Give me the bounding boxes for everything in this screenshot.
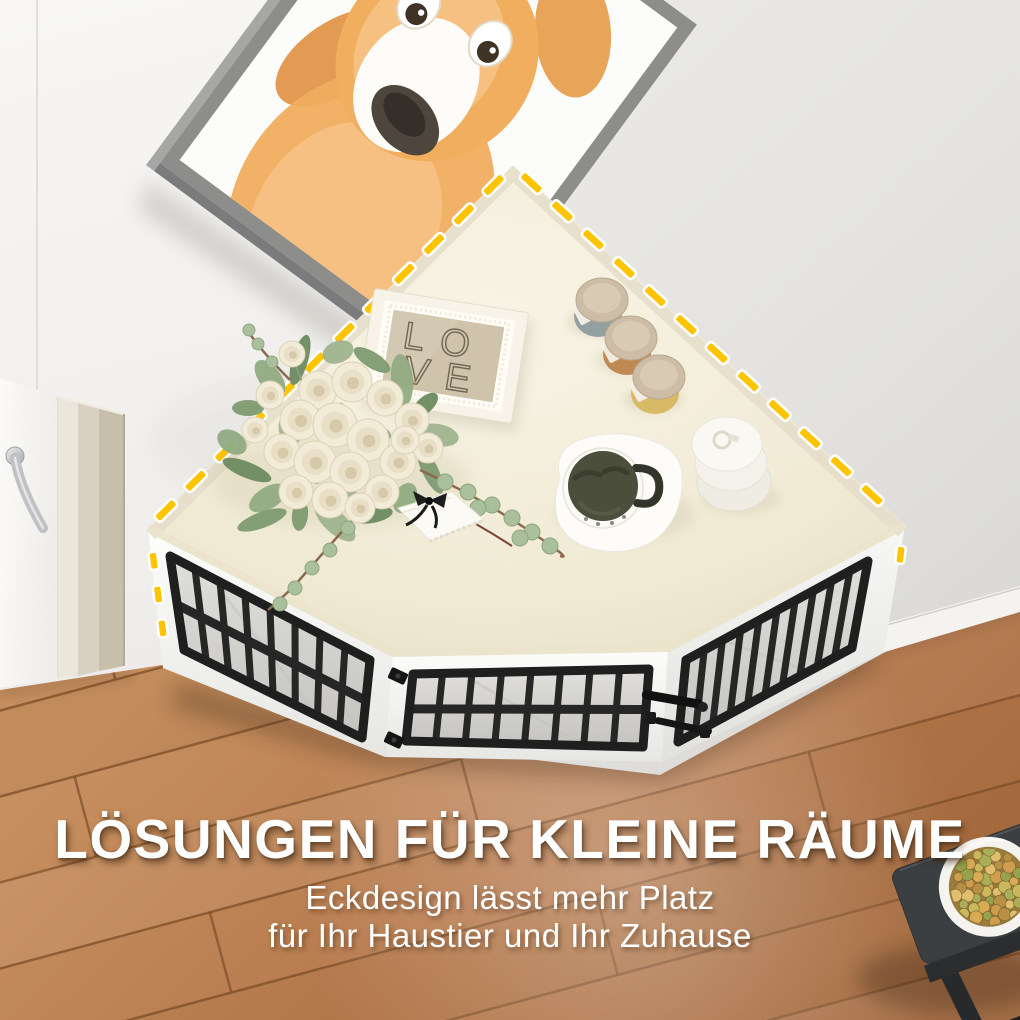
door-frame-strip [99,407,124,671]
rose [256,381,284,409]
can [692,417,762,471]
rose [279,475,313,509]
rose [312,482,348,518]
rose [391,426,419,454]
eucalyptus-leaf [243,324,255,336]
dash [157,619,168,638]
eucalyptus-leaf [542,538,558,554]
rose [345,493,375,523]
door-frame-strip [58,396,78,678]
dash [152,585,163,604]
room-door [0,378,124,688]
eucalyptus-leaf [288,581,302,595]
product-scene: LO VE [0,0,1020,1020]
door-slab [0,378,58,688]
door-frame-strip [78,401,99,676]
rose [279,341,305,367]
rose [332,362,372,402]
eucalyptus-leaf [273,597,287,611]
eucalyptus-leaf [437,474,453,490]
eucalyptus-leaf [305,561,319,575]
hero-image: LO VE LÖSUNGEN FÜR KLEINE RÄUME Eckdesig… [0,0,1020,1020]
eucalyptus-leaf [504,510,520,526]
eucalyptus-leaf [252,338,264,350]
eucalyptus-leaf [266,356,278,368]
eucalyptus-leaf [460,484,476,500]
mug-lid [568,451,638,521]
dash [895,545,906,564]
eucalyptus-leaf [323,543,337,557]
eucalyptus-leaf [341,521,355,535]
dash [148,551,159,570]
eucalyptus-leaf [512,530,528,546]
eucalyptus-leaf [484,497,500,513]
crate-mid-rail [409,709,646,710]
rose [242,417,268,443]
